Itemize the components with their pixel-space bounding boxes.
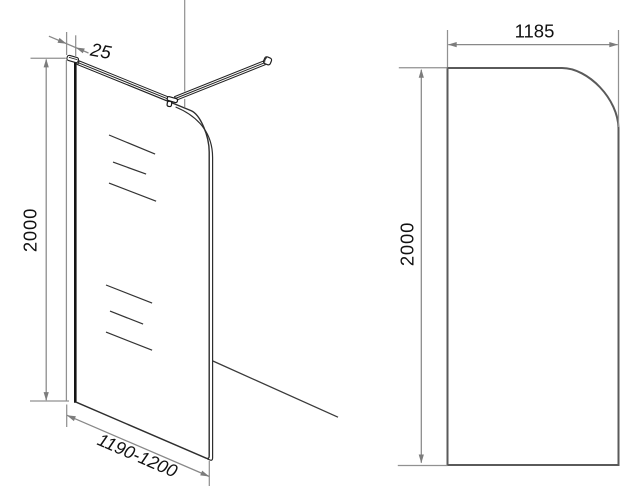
svg-text:1185: 1185: [515, 21, 555, 42]
svg-text:25: 25: [88, 38, 114, 63]
svg-text:2000: 2000: [20, 208, 41, 252]
svg-text:2000: 2000: [397, 222, 418, 266]
